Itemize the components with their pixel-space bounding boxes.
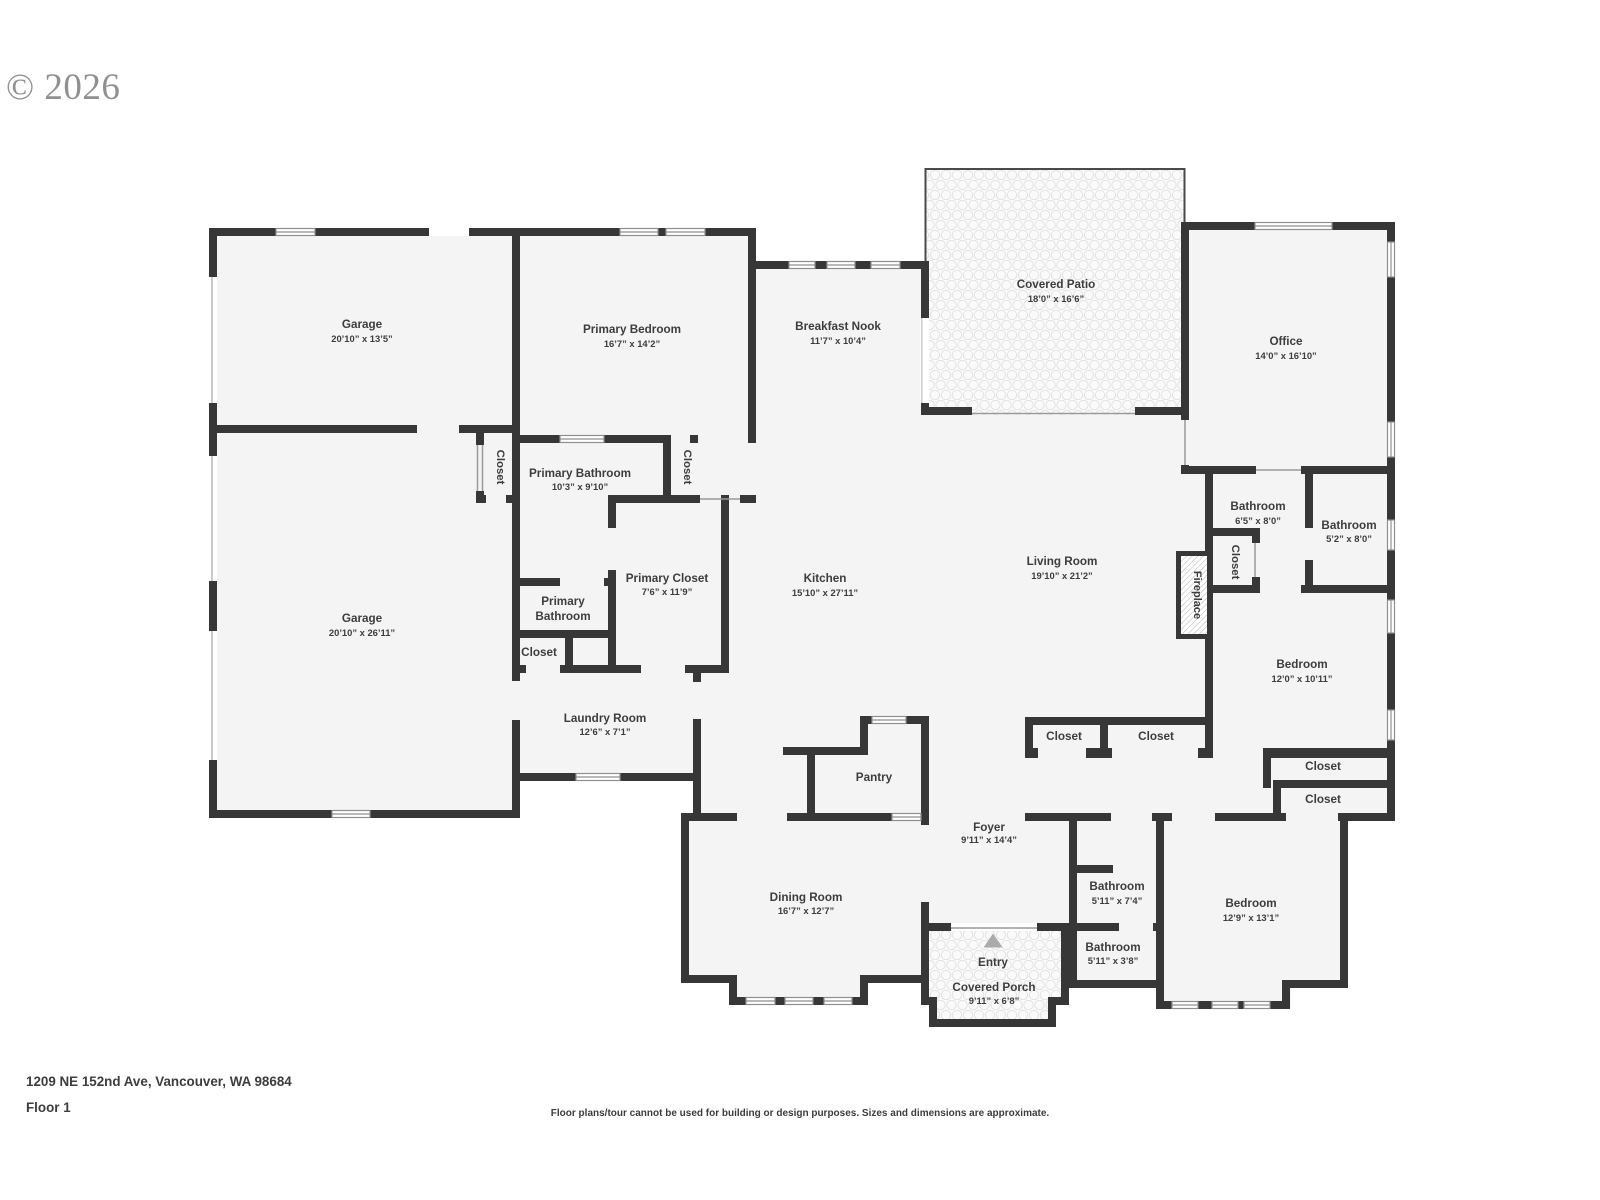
svg-text:Closet: Closet [1046,730,1082,743]
svg-text:14’0” x 16’10”: 14’0” x 16’10” [1255,350,1317,361]
svg-text:12’6” x 7’1”: 12’6” x 7’1” [579,726,630,737]
svg-text:Bedroom: Bedroom [1276,658,1327,671]
svg-text:Primary Closet: Primary Closet [626,572,709,585]
svg-text:5’11” x 3’8”: 5’11” x 3’8” [1088,955,1139,966]
svg-text:9’11” x 6’8”: 9’11” x 6’8” [969,995,1020,1006]
svg-text:Laundry Room: Laundry Room [564,712,646,725]
svg-text:Closet: Closet [1305,760,1341,773]
svg-text:16’7” x 14’2”: 16’7” x 14’2” [604,338,660,349]
svg-text:Pantry: Pantry [856,771,893,784]
svg-text:Garage: Garage [342,318,383,331]
svg-text:Bedroom: Bedroom [1225,897,1276,910]
svg-text:9’11” x 14’4”: 9’11” x 14’4” [961,834,1017,845]
svg-text:Floor plans/tour cannot be use: Floor plans/tour cannot be used for buil… [551,1108,1050,1119]
svg-text:© 2026: © 2026 [6,67,120,108]
svg-text:12’9” x 13’1”: 12’9” x 13’1” [1223,912,1279,923]
svg-text:Garage: Garage [342,612,383,625]
svg-text:Fireplace: Fireplace [1191,571,1203,619]
svg-text:Kitchen: Kitchen [804,572,847,585]
svg-text:Closet: Closet [1229,545,1241,580]
svg-text:Foyer: Foyer [973,821,1005,834]
svg-text:11’7” x 10’4”: 11’7” x 10’4” [810,335,866,346]
svg-text:Floor 1: Floor 1 [26,1100,71,1115]
svg-text:Bathroom: Bathroom [1321,519,1376,532]
svg-text:Dining Room: Dining Room [770,891,843,904]
svg-text:20’10” x 26’11”: 20’10” x 26’11” [329,627,395,638]
svg-text:Bathroom: Bathroom [1085,941,1140,954]
svg-text:Covered Porch: Covered Porch [952,981,1035,994]
svg-text:12’0” x 10’11”: 12’0” x 10’11” [1272,673,1333,684]
svg-text:Living Room: Living Room [1027,555,1098,568]
svg-text:Closet: Closet [1305,793,1341,806]
svg-text:Bathroom: Bathroom [1089,880,1144,893]
svg-text:Covered Patio: Covered Patio [1017,278,1096,291]
svg-text:18’0” x 16’6”: 18’0” x 16’6” [1028,293,1084,304]
svg-text:Primary: Primary [541,595,585,608]
svg-text:16’7” x 12’7”: 16’7” x 12’7” [778,905,834,916]
svg-text:Closet: Closet [494,450,506,485]
svg-text:Primary Bedroom: Primary Bedroom [583,323,681,336]
svg-text:5’11” x 7’4”: 5’11” x 7’4” [1092,895,1143,906]
svg-text:15’10” x 27’11”: 15’10” x 27’11” [792,587,858,598]
svg-text:Bathroom: Bathroom [1230,500,1285,513]
svg-text:Closet: Closet [521,646,557,659]
svg-text:20’10” x 13’5”: 20’10” x 13’5” [331,333,393,344]
svg-text:Bathroom: Bathroom [535,610,590,623]
svg-text:6’5” x 8’0”: 6’5” x 8’0” [1235,515,1281,526]
svg-text:Breakfast Nook: Breakfast Nook [795,320,881,333]
svg-text:Entry: Entry [978,956,1008,969]
svg-text:10’3” x 9’10”: 10’3” x 9’10” [552,481,608,492]
svg-text:Primary Bathroom: Primary Bathroom [529,467,631,480]
svg-text:1209 NE 152nd Ave, Vancouver,: 1209 NE 152nd Ave, Vancouver, WA 98684 [26,1074,292,1089]
svg-text:5’2” x 8’0”: 5’2” x 8’0” [1326,533,1372,544]
svg-text:Closet: Closet [681,450,693,485]
svg-text:Closet: Closet [1138,730,1174,743]
svg-text:Office: Office [1269,335,1303,348]
svg-text:19’10” x 21’2”: 19’10” x 21’2” [1031,570,1093,581]
svg-text:7’6” x 11’9”: 7’6” x 11’9” [642,586,693,597]
